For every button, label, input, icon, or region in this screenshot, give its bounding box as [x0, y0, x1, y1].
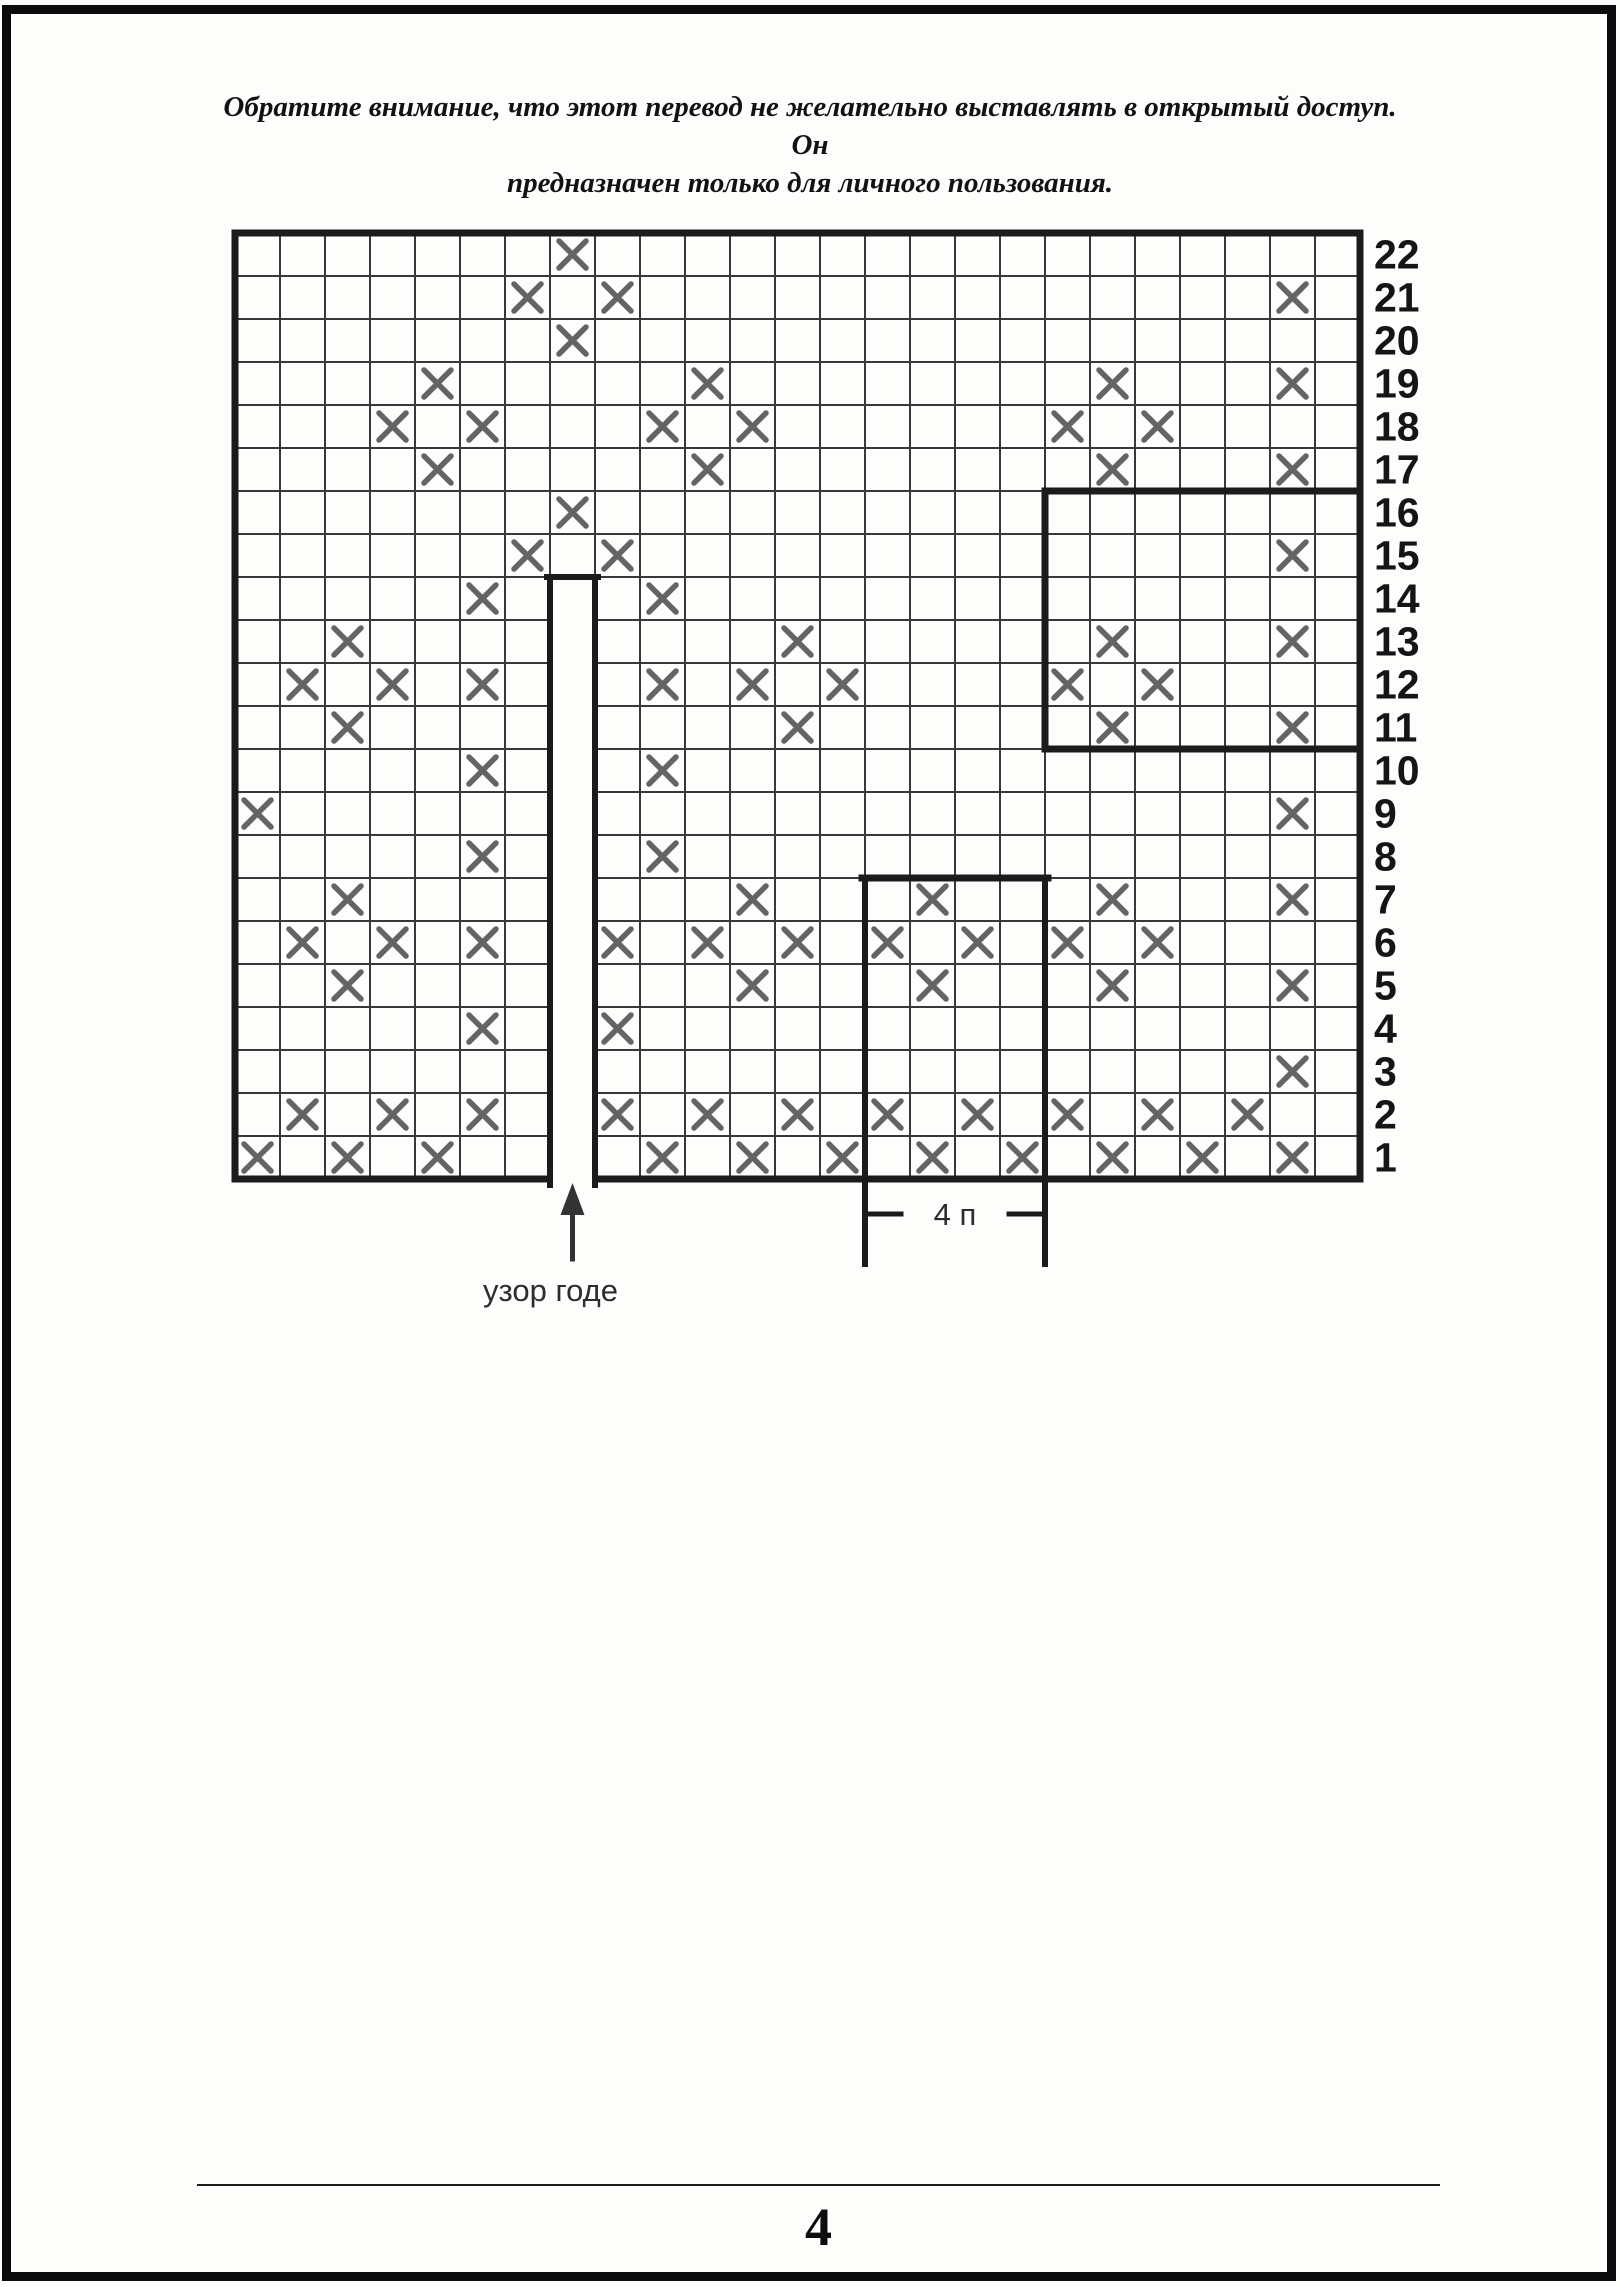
row-label: 19	[1374, 361, 1420, 407]
mark-x	[649, 671, 676, 698]
row-label: 7	[1374, 877, 1397, 923]
mark-x	[739, 413, 766, 440]
mark-x	[1189, 1144, 1216, 1171]
mark-x	[334, 1144, 361, 1171]
mark-x	[514, 542, 541, 569]
mark-x	[289, 1101, 316, 1128]
mark-x	[1279, 886, 1306, 913]
mark-x	[604, 1015, 631, 1042]
mark-x	[424, 456, 451, 483]
row-label: 17	[1374, 447, 1420, 493]
mark-x	[649, 843, 676, 870]
mark-x	[784, 1101, 811, 1128]
mark-x	[874, 1101, 901, 1128]
mark-x	[1099, 714, 1126, 741]
mark-x	[1279, 1058, 1306, 1085]
mark-x	[1054, 929, 1081, 956]
mark-x	[379, 671, 406, 698]
mark-x	[694, 1101, 721, 1128]
mark-x	[1099, 456, 1126, 483]
footer-rule	[197, 2184, 1440, 2186]
page-number: 4	[197, 2196, 1440, 2258]
mark-x	[289, 671, 316, 698]
row-label: 8	[1374, 834, 1397, 880]
mark-x	[469, 757, 496, 784]
mark-x	[739, 671, 766, 698]
mark-x	[469, 413, 496, 440]
mark-x	[1099, 370, 1126, 397]
mark-x	[559, 241, 586, 268]
stitch-count-label: 4 п	[934, 1197, 977, 1232]
mark-x	[1054, 671, 1081, 698]
mark-x	[1279, 800, 1306, 827]
mark-x	[649, 413, 676, 440]
mark-x	[1099, 628, 1126, 655]
mark-x	[469, 1015, 496, 1042]
mark-x	[1279, 628, 1306, 655]
mark-x	[334, 972, 361, 999]
mark-x	[829, 671, 856, 698]
mark-x	[874, 929, 901, 956]
row-label: 4	[1374, 1006, 1397, 1052]
mark-x	[559, 327, 586, 354]
mark-x	[604, 284, 631, 311]
mark-x	[964, 929, 991, 956]
mark-x	[739, 886, 766, 913]
mark-x	[424, 1144, 451, 1171]
mark-x	[244, 1144, 271, 1171]
mark-x	[649, 1144, 676, 1171]
mark-x	[334, 714, 361, 741]
row-label: 18	[1374, 404, 1420, 450]
mark-x	[1099, 1144, 1126, 1171]
row-label: 16	[1374, 490, 1420, 536]
mark-x	[289, 929, 316, 956]
mark-x	[1144, 413, 1171, 440]
mark-x	[1144, 671, 1171, 698]
row-label: 22	[1374, 232, 1420, 278]
row-label: 21	[1374, 275, 1420, 321]
row-label: 15	[1374, 533, 1420, 579]
mark-x	[469, 585, 496, 612]
mark-x	[1099, 972, 1126, 999]
mark-x	[604, 1101, 631, 1128]
gore-pattern-label: узор годе	[483, 1273, 618, 1308]
mark-x	[469, 929, 496, 956]
knitting-chart: 22212019181716151413121110987654321узор …	[0, 0, 1620, 1400]
mark-x	[559, 499, 586, 526]
mark-x	[424, 370, 451, 397]
mark-x	[829, 1144, 856, 1171]
mark-x	[919, 1144, 946, 1171]
mark-x	[1054, 1101, 1081, 1128]
mark-x	[694, 456, 721, 483]
row-label: 1	[1374, 1135, 1397, 1181]
mark-x	[964, 1101, 991, 1128]
mark-x	[379, 929, 406, 956]
mark-x	[1279, 284, 1306, 311]
mark-x	[1279, 714, 1306, 741]
mark-x	[469, 1101, 496, 1128]
mark-x	[1279, 370, 1306, 397]
mark-x	[604, 542, 631, 569]
mark-x	[919, 972, 946, 999]
mark-x	[1279, 542, 1306, 569]
row-label: 3	[1374, 1049, 1397, 1095]
mark-x	[379, 1101, 406, 1128]
mark-x	[604, 929, 631, 956]
row-label: 2	[1374, 1092, 1397, 1138]
mark-x	[694, 929, 721, 956]
mark-x	[1234, 1101, 1261, 1128]
mark-x	[1099, 886, 1126, 913]
row-label: 14	[1374, 576, 1420, 622]
mark-x	[649, 585, 676, 612]
scanned-document-page: Обратите внимание, что этот перевод не ж…	[0, 0, 1620, 2287]
mark-x	[334, 886, 361, 913]
mark-x	[1054, 413, 1081, 440]
mark-x	[514, 284, 541, 311]
mark-x	[1009, 1144, 1036, 1171]
row-label: 20	[1374, 318, 1420, 364]
mark-x	[469, 671, 496, 698]
mark-x	[244, 800, 271, 827]
mark-x	[1279, 1144, 1306, 1171]
row-label: 10	[1374, 748, 1420, 794]
row-label: 12	[1374, 662, 1420, 708]
gore-slit-gap	[547, 574, 598, 1190]
row-label: 6	[1374, 920, 1397, 966]
mark-x	[649, 757, 676, 784]
mark-x	[1144, 1101, 1171, 1128]
mark-x	[1279, 456, 1306, 483]
mark-x	[784, 628, 811, 655]
mark-x	[469, 843, 496, 870]
row-label: 9	[1374, 791, 1397, 837]
mark-x	[739, 972, 766, 999]
mark-x	[784, 929, 811, 956]
row-label: 13	[1374, 619, 1420, 665]
row-label: 11	[1374, 705, 1417, 751]
mark-x	[379, 413, 406, 440]
mark-x	[334, 628, 361, 655]
row-label: 5	[1374, 963, 1397, 1009]
mark-x	[1144, 929, 1171, 956]
mark-x	[784, 714, 811, 741]
mark-x	[1279, 972, 1306, 999]
mark-x	[919, 886, 946, 913]
mark-x	[739, 1144, 766, 1171]
mark-x	[694, 370, 721, 397]
